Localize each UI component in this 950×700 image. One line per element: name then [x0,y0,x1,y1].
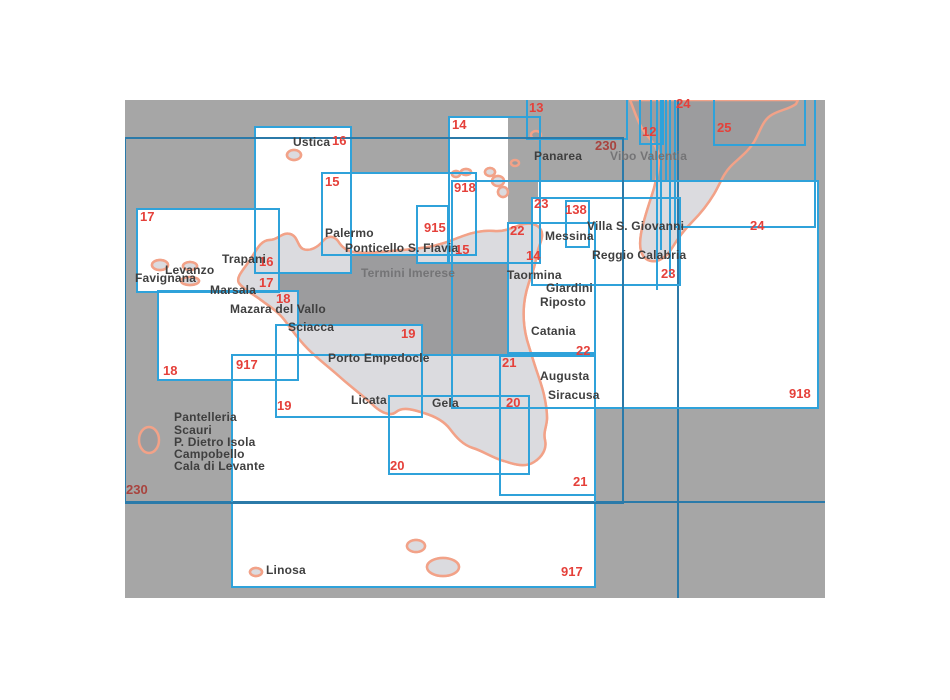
chart-index-map [0,0,950,700]
chart-index-page: 1616171718181515915141413122424259189182… [0,0,950,700]
